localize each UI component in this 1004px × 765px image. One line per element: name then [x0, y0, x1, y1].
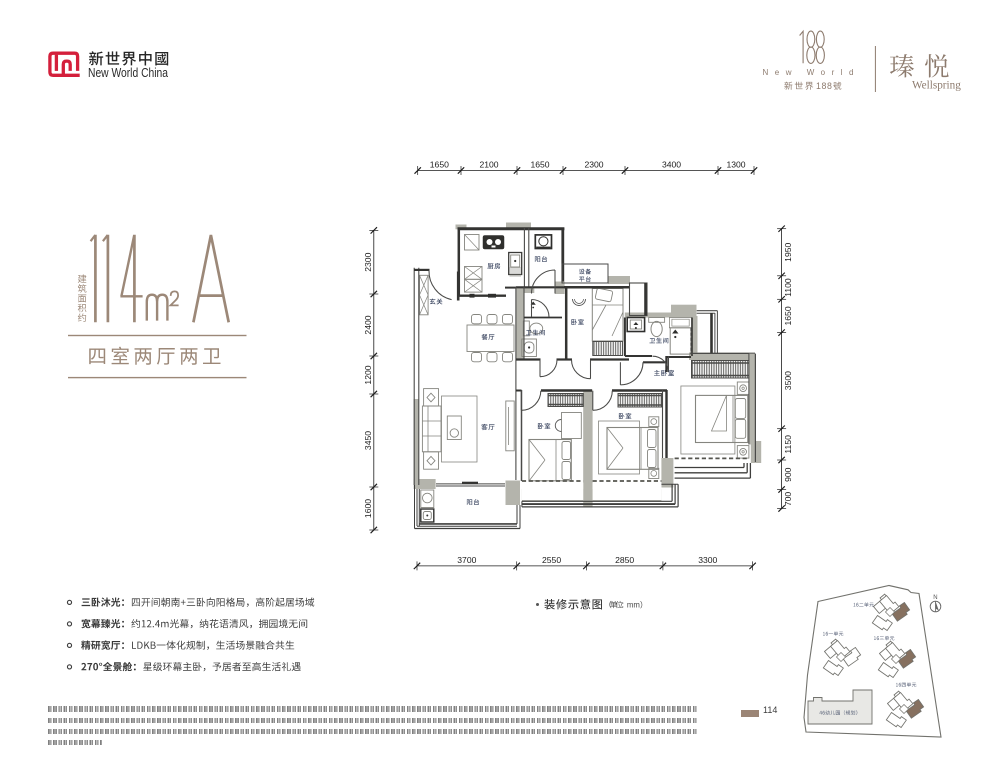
svg-text:1650: 1650	[783, 306, 793, 325]
svg-text:188: 188	[816, 81, 832, 91]
svg-text:3400: 3400	[662, 160, 681, 170]
svg-text:2100: 2100	[479, 160, 498, 170]
svg-text:1600: 1600	[363, 499, 373, 518]
svg-text:N: N	[933, 595, 937, 601]
svg-text:2850: 2850	[615, 555, 634, 565]
svg-text:1200: 1200	[363, 365, 373, 384]
svg-text:2400: 2400	[363, 315, 373, 334]
svg-text:3500: 3500	[783, 371, 793, 390]
svg-text:700: 700	[783, 492, 793, 507]
svg-text:2550: 2550	[542, 555, 561, 565]
svg-text:mm）: mm）	[627, 601, 648, 610]
svg-text:1650: 1650	[430, 160, 449, 170]
svg-text:3450: 3450	[363, 431, 373, 450]
svg-text:3300: 3300	[698, 555, 717, 565]
svg-text:1950: 1950	[783, 242, 793, 261]
svg-text:900: 900	[783, 467, 793, 482]
svg-text:New World China: New World China	[88, 66, 168, 80]
svg-text:Wellspring: Wellspring	[912, 80, 961, 92]
svg-text:1300: 1300	[726, 160, 745, 170]
svg-text:2300: 2300	[363, 252, 373, 271]
svg-text:New World: New World	[763, 68, 860, 77]
svg-text:3700: 3700	[457, 555, 476, 565]
svg-text:2300: 2300	[584, 160, 603, 170]
svg-text:1150: 1150	[783, 435, 793, 454]
svg-text:1100: 1100	[783, 278, 793, 297]
svg-text:1650: 1650	[530, 160, 549, 170]
